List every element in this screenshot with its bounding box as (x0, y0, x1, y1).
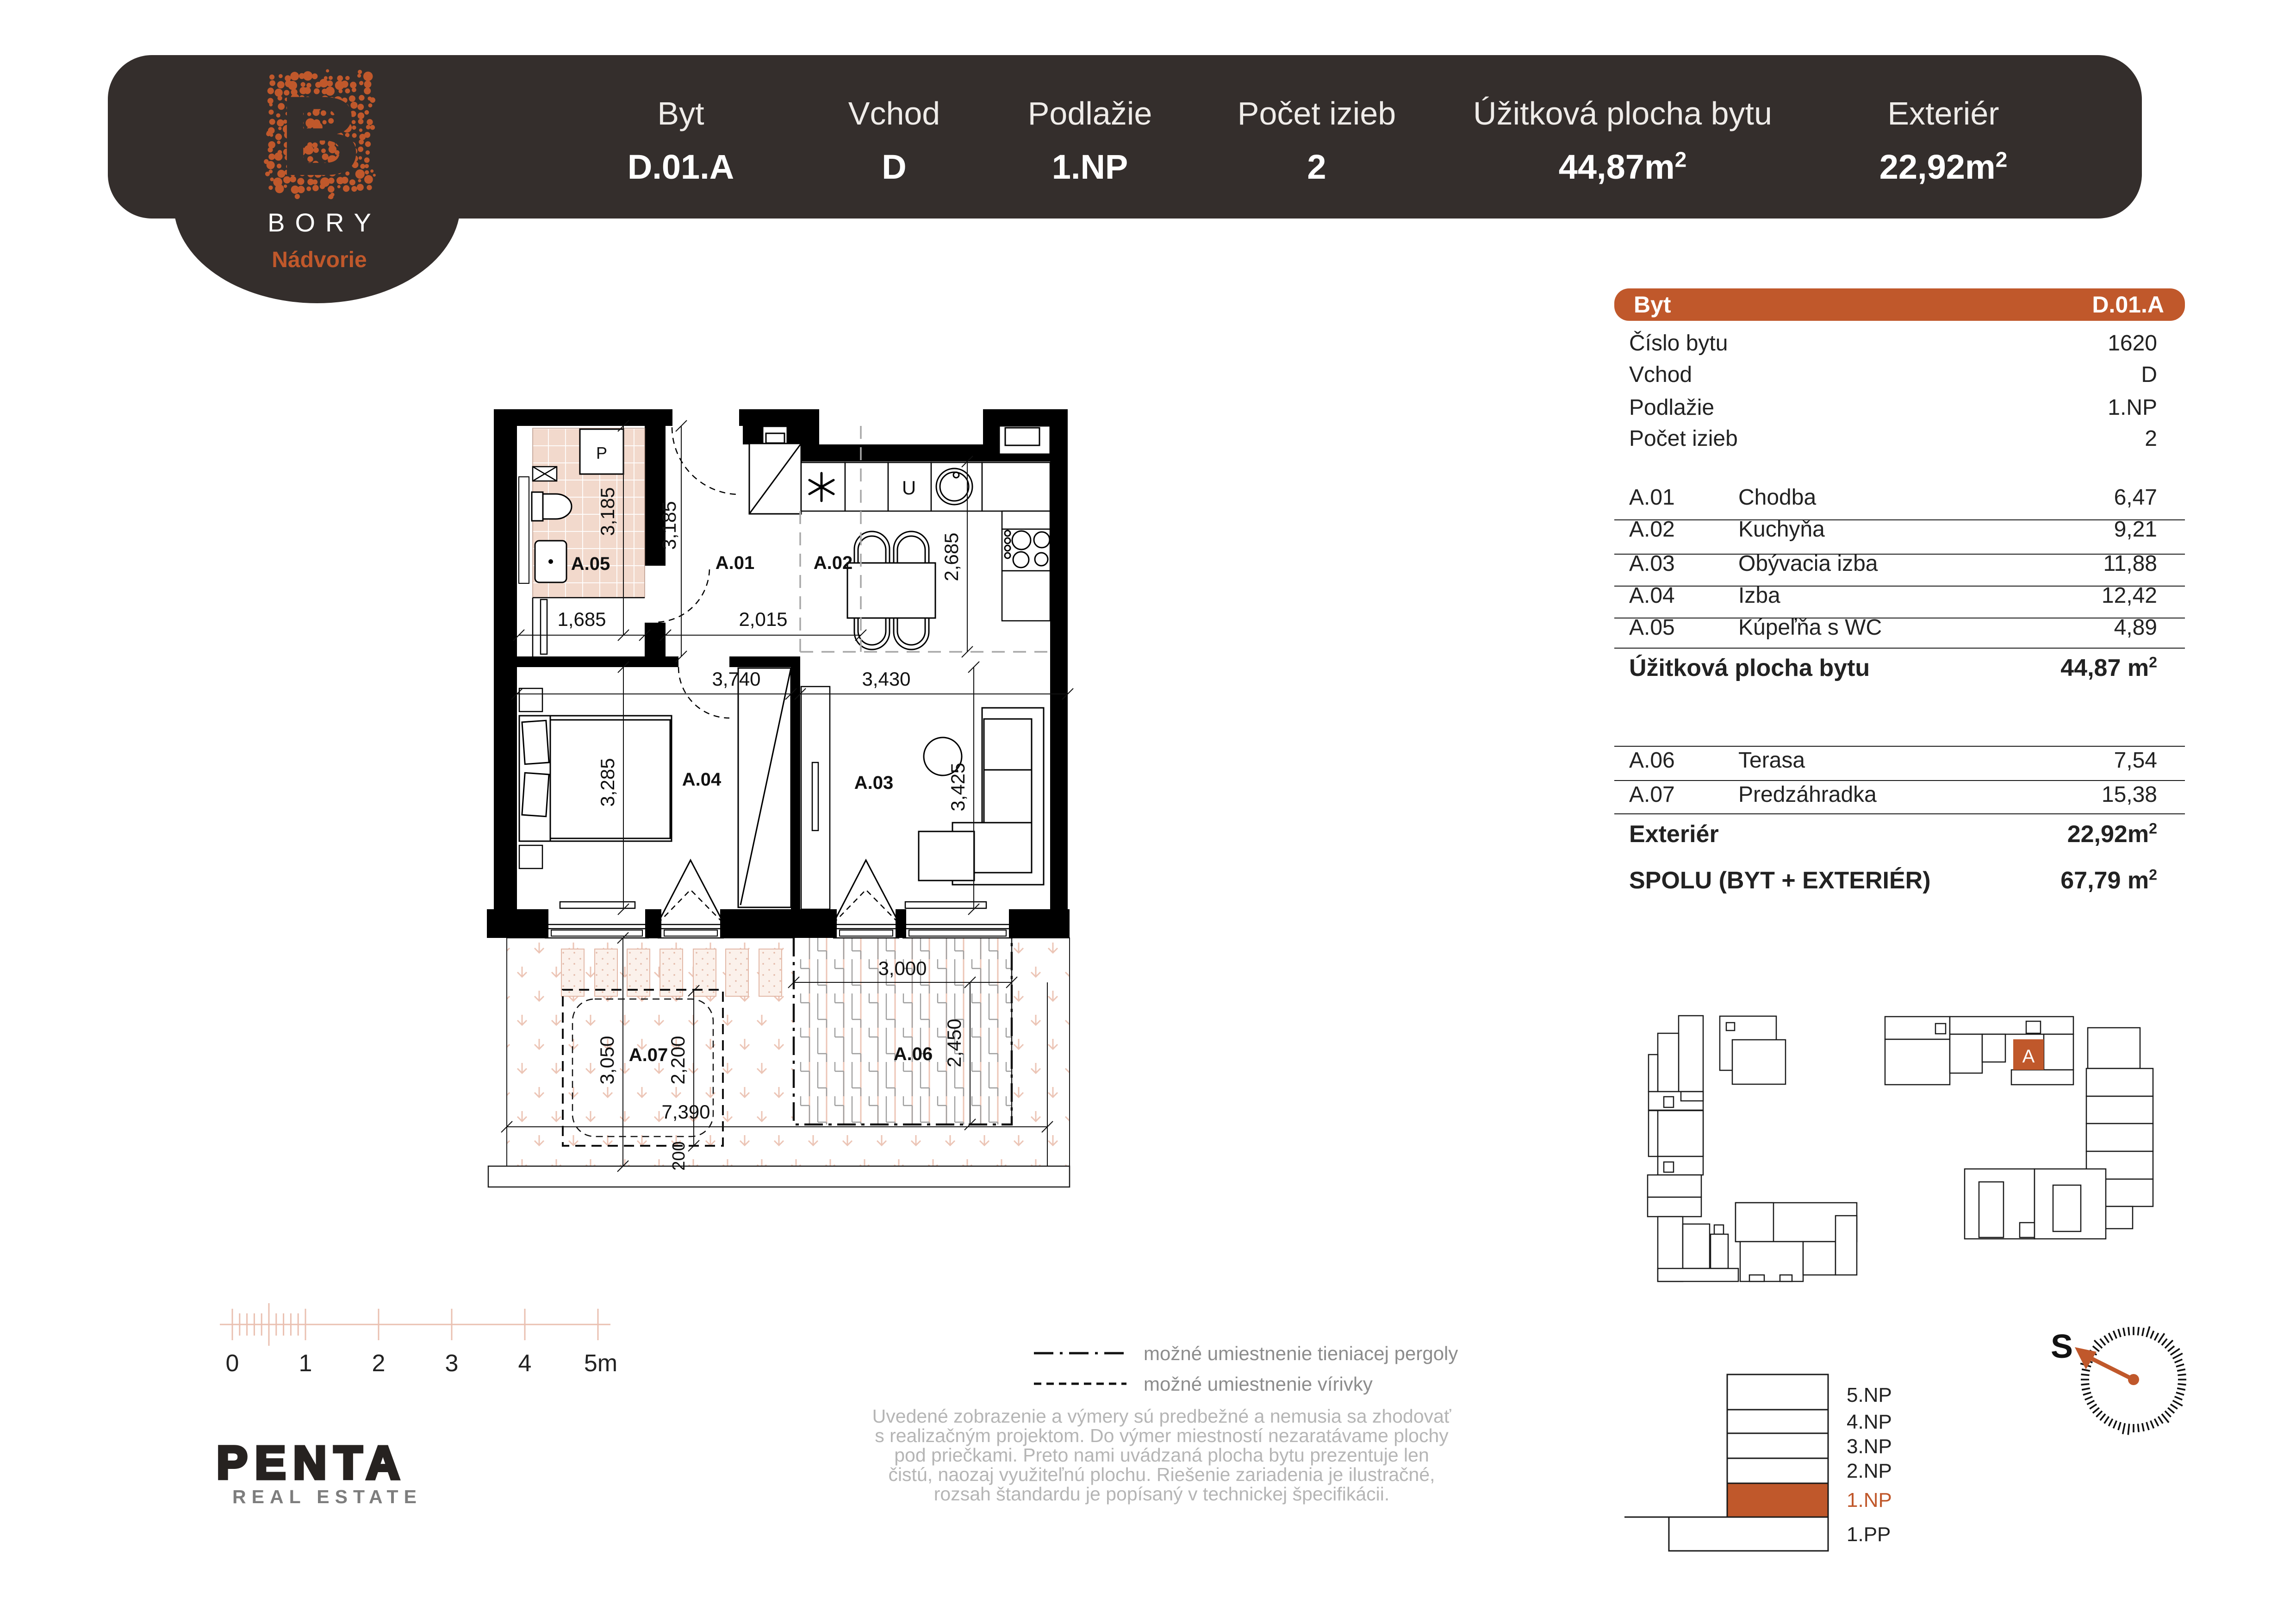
svg-text:4.NP: 4.NP (1847, 1411, 1892, 1433)
svg-text:A.04: A.04 (682, 769, 722, 790)
svg-text:B: B (280, 72, 361, 199)
svg-text:5m: 5m (584, 1350, 617, 1377)
svg-text:A: A (2022, 1046, 2035, 1067)
svg-text:2,685: 2,685 (940, 532, 962, 581)
svg-text:3,740: 3,740 (712, 668, 760, 690)
svg-text:2,450: 2,450 (943, 1018, 965, 1067)
svg-text:U: U (902, 477, 916, 499)
svg-text:A.05: A.05 (571, 554, 610, 574)
svg-text:A.07: A.07 (629, 1045, 668, 1065)
svg-text:3,285: 3,285 (597, 758, 618, 806)
svg-text:A.03: A.03 (854, 773, 894, 793)
svg-text:2.NP: 2.NP (1847, 1460, 1892, 1482)
svg-text:S: S (2051, 1328, 2073, 1365)
svg-text:4: 4 (518, 1350, 532, 1377)
svg-text:1: 1 (299, 1350, 312, 1377)
svg-text:A.02: A.02 (814, 553, 853, 573)
svg-text:0: 0 (226, 1350, 239, 1377)
svg-text:2,200: 2,200 (667, 1036, 689, 1084)
svg-text:1,685: 1,685 (557, 608, 606, 630)
svg-text:3,425: 3,425 (947, 762, 969, 811)
svg-text:2,015: 2,015 (739, 608, 787, 630)
svg-text:3: 3 (445, 1350, 459, 1377)
svg-text:P: P (596, 443, 607, 462)
svg-text:3,000: 3,000 (878, 957, 927, 979)
svg-text:3.NP: 3.NP (1847, 1435, 1892, 1458)
svg-text:3,050: 3,050 (596, 1036, 618, 1084)
svg-text:3,430: 3,430 (862, 668, 910, 690)
svg-text:1.NP: 1.NP (1847, 1489, 1892, 1512)
svg-text:REAL ESTATE: REAL ESTATE (232, 1486, 422, 1507)
svg-text:PENTA: PENTA (217, 1437, 407, 1489)
svg-text:5.NP: 5.NP (1847, 1384, 1892, 1406)
svg-text:2: 2 (372, 1350, 386, 1377)
svg-text:A.01: A.01 (716, 553, 755, 573)
svg-text:3,185: 3,185 (658, 501, 680, 550)
svg-text:1.PP: 1.PP (1847, 1523, 1891, 1546)
svg-text:7,390: 7,390 (661, 1101, 710, 1123)
svg-text:3,185: 3,185 (597, 487, 618, 536)
svg-text:A.06: A.06 (894, 1044, 933, 1064)
svg-text:200: 200 (669, 1141, 689, 1170)
